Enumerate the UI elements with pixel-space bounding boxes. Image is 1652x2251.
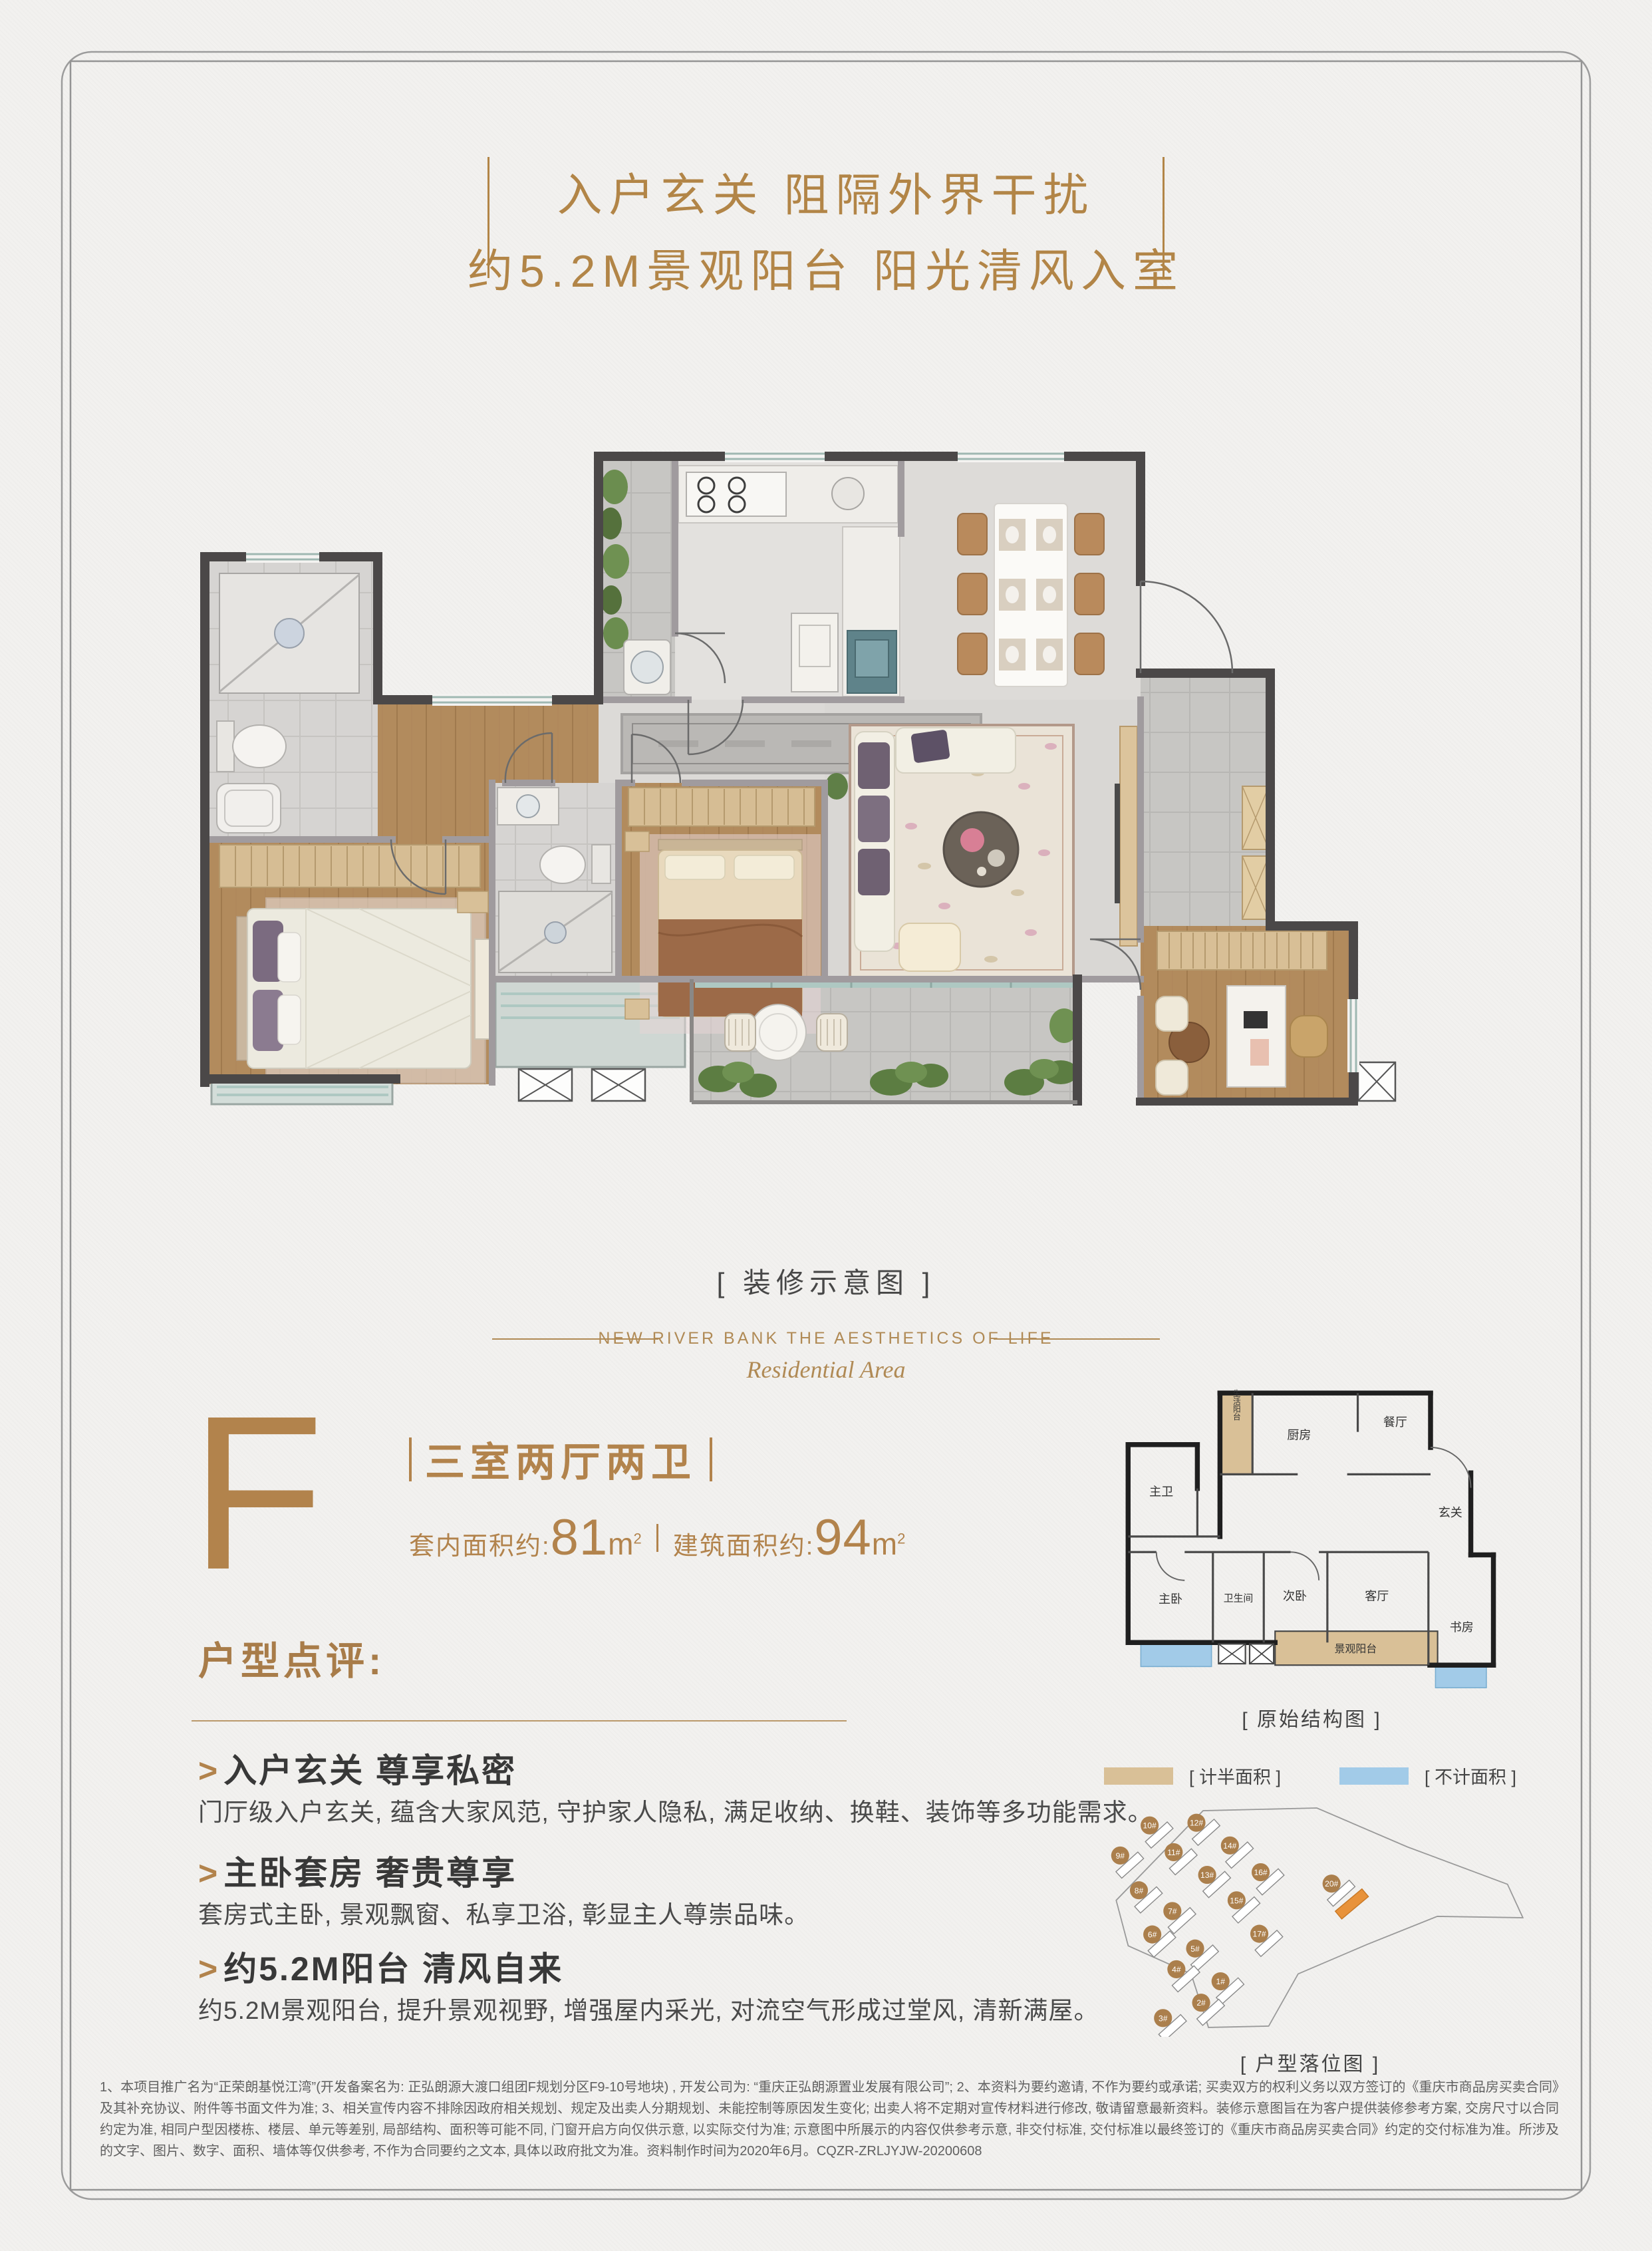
svg-text:12#: 12# (1190, 1819, 1203, 1828)
room-label-zhuwei: 主卫 (1149, 1485, 1173, 1498)
dining-set (958, 504, 1104, 686)
svg-text:3#: 3# (1159, 2014, 1168, 2023)
site-plan-caption: [ 户型落位图 ] (1089, 2047, 1531, 2077)
svg-text:16#: 16# (1254, 1868, 1268, 1877)
headline-line2: 约5.2M景观阳台 阳光清风入室 (0, 234, 1652, 300)
rooms-label: 三室两厅两卫 (425, 1430, 696, 1488)
room-label-canting: 餐厅 (1383, 1416, 1407, 1429)
build-area-unit: m2 (872, 1526, 906, 1562)
room-label-zhuwo: 主卧 (1159, 1592, 1182, 1606)
rooms-left-bar (409, 1437, 412, 1481)
master-bay-area (1141, 1642, 1211, 1666)
bullet1-arrow: > (198, 1752, 219, 1789)
legend-half-area-swatch (1104, 1767, 1173, 1785)
room-label-keting: 客厅 (1365, 1590, 1389, 1603)
unit-area-row: 套内面积约: 81 m2 建筑面积约: 94 m2 (409, 1509, 905, 1567)
room-label-shenghuoyangtai: 生活阳台 (1232, 1389, 1240, 1420)
structure-door-arcs (1157, 1447, 1471, 1580)
legend-half-area-label: [ 计半面积 ] (1189, 1763, 1281, 1789)
review-heading: 户型点评: (198, 1630, 385, 1686)
rooms-right-bar (710, 1437, 712, 1481)
bullet2-title: >主卧套房 奢贵尊享 (198, 1847, 517, 1894)
build-area-label: 建筑面积约: (673, 1525, 815, 1562)
room-label-shufang: 书房 (1450, 1620, 1474, 1634)
bedroom2-furniture (625, 788, 821, 1034)
area-separator (656, 1524, 658, 1552)
svg-text:14#: 14# (1223, 1841, 1236, 1851)
site-plan: 9#10#11#12#13#14#15#16#17#8#7#6#5#4#1#2#… (1089, 1805, 1531, 2037)
site-building: 16# (1252, 1863, 1284, 1895)
inner-area-unit: m2 (608, 1526, 642, 1562)
site-building: 17# (1250, 1925, 1283, 1957)
bullet2-desc: 套房式主卧, 景观飘窗、私享卫浴, 彰显主人尊崇品味。 (198, 1894, 809, 1930)
inner-area-label: 套内面积约: (409, 1525, 551, 1562)
site-building: 1# (1212, 1972, 1244, 2004)
legend-excluded-swatch (1339, 1767, 1409, 1785)
site-building: 7# (1163, 1902, 1196, 1934)
unit-type-letter: F (190, 1405, 325, 1580)
site-building: 12# (1187, 1814, 1220, 1846)
structure-window-wells (1218, 1644, 1274, 1664)
bullet2-arrow: > (198, 1855, 219, 1892)
site-building: 14# (1221, 1837, 1254, 1869)
disclaimer-text: 1、本项目推广名为“正荣朗基悦江湾”(开发备案名为: 正弘朗源大渡口组团F规划分… (100, 2077, 1559, 2162)
svg-text:13#: 13# (1200, 1871, 1214, 1880)
flyer-page: 入户玄关 阻隔外界干扰 约5.2M景观阳台 阳光清风入室 (0, 0, 1652, 2251)
unit-rooms-row: 三室两厅两卫 (409, 1430, 712, 1488)
build-area-value: 94 (814, 1509, 872, 1567)
decorated-floor-plan (193, 414, 1397, 1106)
study-bay-area (1435, 1665, 1486, 1688)
bullet3-title: >约5.2M阳台 清风自来 (198, 1942, 563, 1990)
site-buildings-group: 9#10#11#12#13#14#15#16#17#8#7#6#5#4#1#2#… (1111, 1814, 1355, 2037)
master-bedroom-furniture (219, 845, 489, 1083)
svg-text:4#: 4# (1172, 1965, 1181, 1974)
bullet3-arrow: > (198, 1950, 219, 1988)
headline-line1: 入户玄关 阻隔外界干扰 (0, 158, 1652, 224)
room-label-ciwo: 次卧 (1283, 1590, 1307, 1603)
svg-text:9#: 9# (1116, 1851, 1125, 1861)
svg-text:15#: 15# (1230, 1896, 1243, 1905)
review-rule (192, 1720, 847, 1722)
svg-text:6#: 6# (1148, 1930, 1157, 1940)
svg-text:8#: 8# (1135, 1886, 1144, 1895)
svg-text:17#: 17# (1253, 1930, 1266, 1939)
svg-text:2#: 2# (1196, 1998, 1206, 2008)
bullet1-desc: 门厅级入户玄关, 蕴含大家风范, 守护家人隐私, 满足收纳、换鞋、装饰等多功能需… (198, 1792, 1153, 1828)
svg-text:11#: 11# (1167, 1848, 1180, 1857)
site-building: 5# (1186, 1940, 1218, 1972)
room-label-jingguanyangtai: 景观阳台 (1335, 1643, 1377, 1655)
bullet1-title: >入户玄关 尊享私密 (198, 1744, 517, 1792)
inner-area-value: 81 (551, 1509, 609, 1567)
site-building: 11# (1165, 1843, 1197, 1875)
svg-text:5#: 5# (1190, 1944, 1200, 1954)
site-building: 15# (1228, 1891, 1260, 1923)
site-building: 10# (1141, 1817, 1173, 1849)
site-building: 9# (1111, 1847, 1144, 1878)
site-building: 13# (1198, 1866, 1231, 1898)
room-label-chufang: 厨房 (1287, 1428, 1311, 1441)
svg-text:1#: 1# (1216, 1977, 1226, 1986)
svg-text:7#: 7# (1168, 1906, 1177, 1916)
site-building: 3# (1154, 2009, 1186, 2037)
area-legend: [ 计半面积 ] [ 不计面积 ] (1091, 1763, 1530, 1789)
legend-excluded-label: [ 不计面积 ] (1425, 1763, 1516, 1789)
room-label-xuanguan: 玄关 (1439, 1506, 1462, 1519)
room-label-weishengjian: 卫生间 (1224, 1593, 1254, 1604)
svg-text:10#: 10# (1143, 1821, 1157, 1831)
divider-english: NEW RIVER BANK THE AESTHETICS OF LIFE (0, 1329, 1652, 1348)
bullet3-desc: 约5.2M景观阳台, 提升景观视野, 增强屋内采光, 对流空气形成过堂风, 清新… (198, 1990, 1099, 2026)
svg-text:20#: 20# (1325, 1879, 1338, 1888)
structure-plan: 主卫 生活阳台 厨房 餐厅 玄关 主卧 卫生间 次卧 客厅 书房 景观阳台 (1114, 1382, 1510, 1694)
structure-partitions (1128, 1393, 1431, 1665)
plan-caption: [ 装修示意图 ] (0, 1261, 1652, 1301)
site-building: 8# (1130, 1881, 1163, 1913)
structure-plan-caption: [ 原始结构图 ] (1114, 1703, 1510, 1732)
